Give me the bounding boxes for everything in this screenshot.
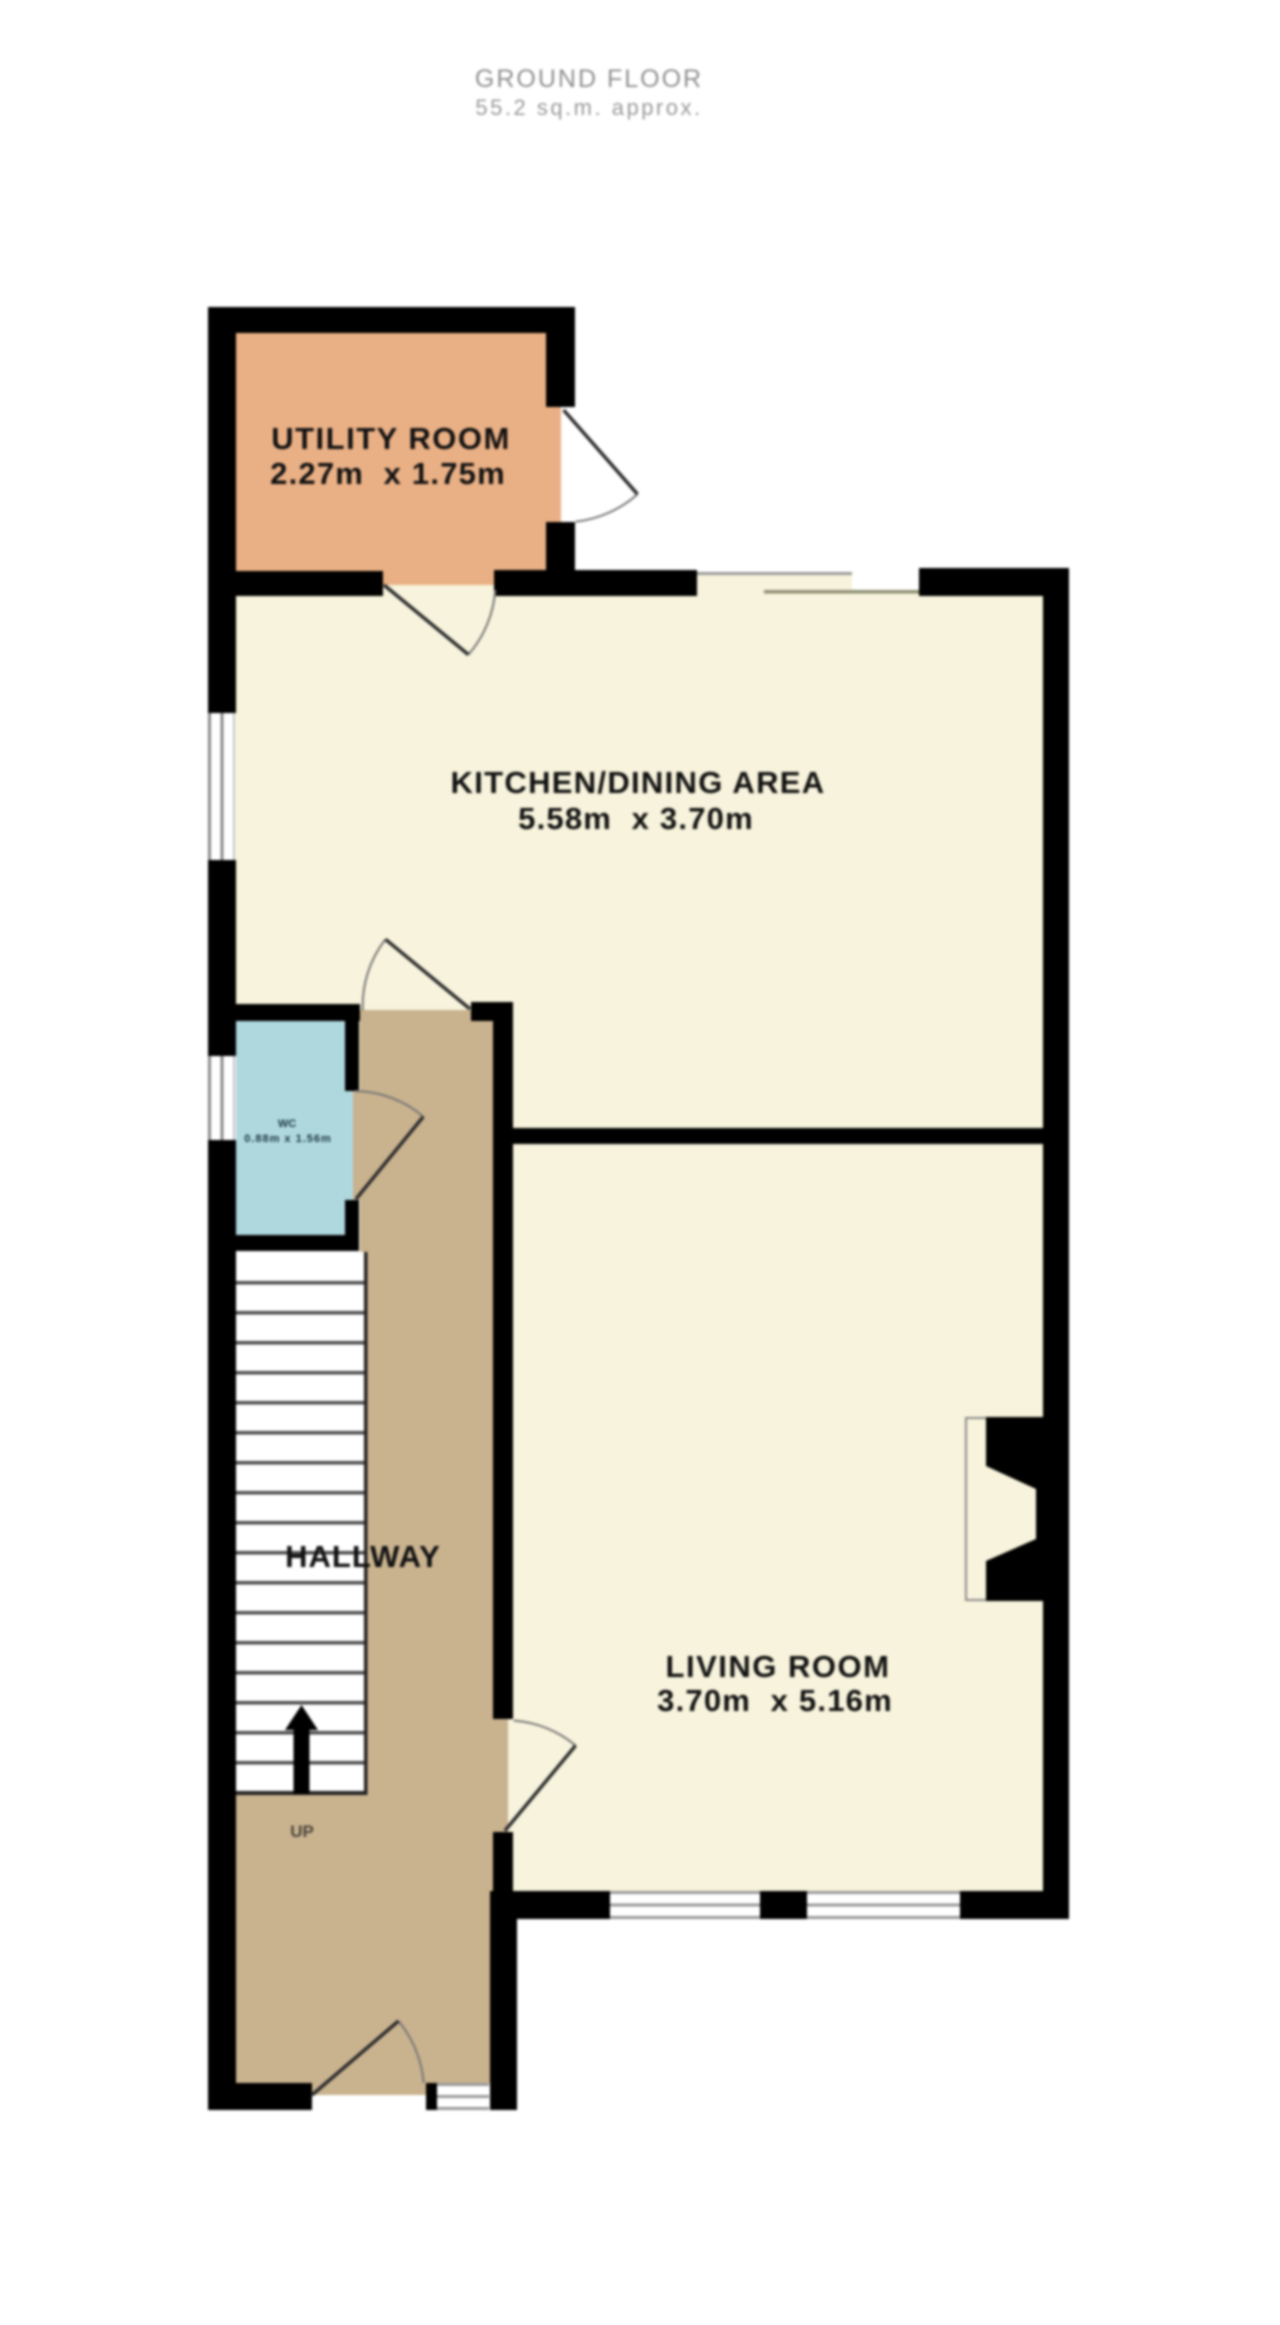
svg-text:5.58m x 3.70m: 5.58m x 3.70m	[518, 801, 754, 836]
svg-text:UP: UP	[290, 1822, 314, 1841]
svg-text:LIVING ROOM: LIVING ROOM	[666, 1649, 891, 1684]
svg-text:WC: WC	[278, 1118, 296, 1130]
svg-text:UTILITY ROOM: UTILITY ROOM	[271, 421, 511, 456]
svg-text:HALLWAY: HALLWAY	[285, 1539, 441, 1574]
svg-text:KITCHEN/DINING AREA: KITCHEN/DINING AREA	[451, 765, 826, 800]
svg-text:2.27m x 1.75m: 2.27m x 1.75m	[270, 456, 506, 491]
svg-text:0.88m x 1.56m: 0.88m x 1.56m	[244, 1133, 332, 1145]
svg-text:3.70m x 5.16m: 3.70m x 5.16m	[657, 1683, 893, 1718]
svg-text:55.2 sq.m. approx.: 55.2 sq.m. approx.	[475, 95, 702, 120]
svg-text:GROUND FLOOR: GROUND FLOOR	[475, 65, 703, 93]
